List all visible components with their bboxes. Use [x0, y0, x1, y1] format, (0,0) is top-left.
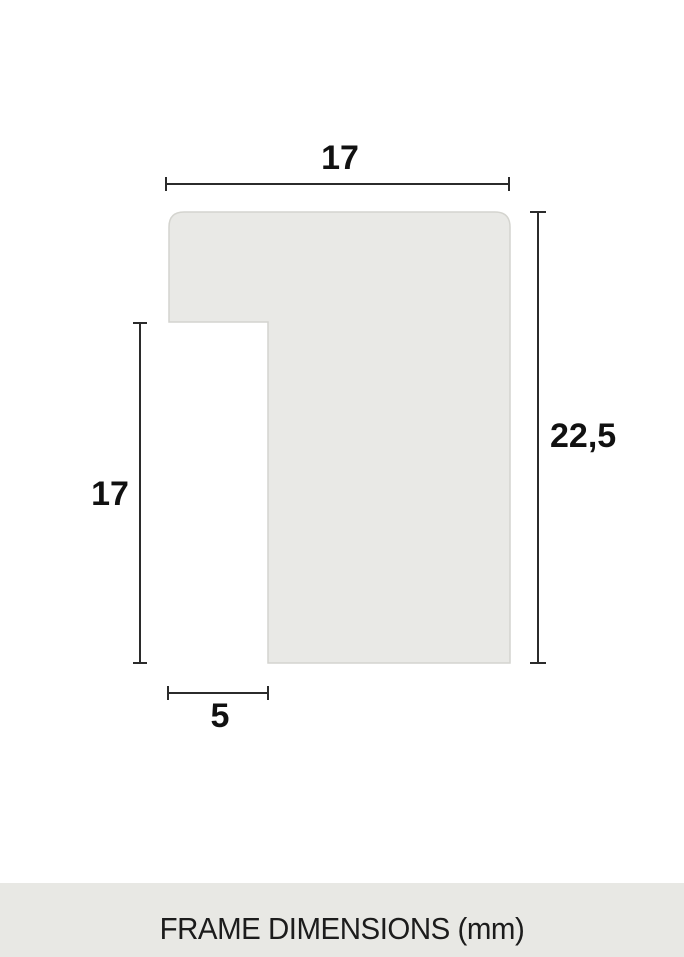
footer-title: FRAME DIMENSIONS (mm): [160, 911, 525, 947]
dimension-line-right: [530, 212, 546, 663]
footer-bar: FRAME DIMENSIONS (mm): [0, 883, 684, 957]
dimension-label-bottom-width: 5: [211, 699, 230, 733]
dimension-label-right-height: 22,5: [550, 419, 616, 453]
frame-profile-shape: [169, 212, 510, 663]
dimension-label-left-height: 17: [91, 477, 129, 511]
dimension-line-top: [166, 177, 509, 191]
dimension-label-top-width: 17: [321, 141, 359, 175]
frame-dimension-diagram: 17 22,5 17 5 FRAME DIMENSIONS (mm): [0, 0, 684, 957]
dimension-line-left: [133, 323, 147, 663]
